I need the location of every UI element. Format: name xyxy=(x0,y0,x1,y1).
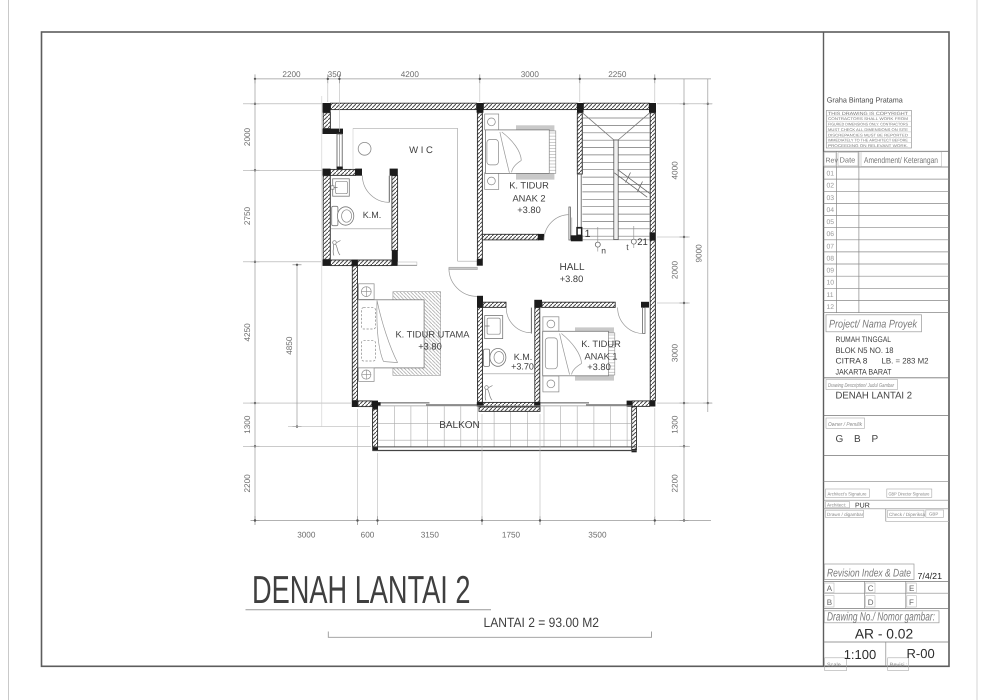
svg-text:A: A xyxy=(827,584,833,593)
svg-text:2000: 2000 xyxy=(243,127,252,146)
svg-text:2200: 2200 xyxy=(282,70,301,79)
svg-text:09: 09 xyxy=(827,268,835,275)
svg-text:11: 11 xyxy=(827,292,834,299)
svg-text:ANAK 2: ANAK 2 xyxy=(512,194,545,204)
svg-text:1300: 1300 xyxy=(671,415,680,434)
svg-text:B: B xyxy=(827,598,832,607)
svg-text:HALL: HALL xyxy=(559,262,584,273)
svg-text:LB. = 283 M2: LB. = 283 M2 xyxy=(882,357,930,366)
svg-text:1300: 1300 xyxy=(243,415,252,434)
svg-text:THIS DRAWING IS COPYRIGHT: THIS DRAWING IS COPYRIGHT xyxy=(828,111,908,116)
svg-text:BLOK N5 NO. 18: BLOK N5 NO. 18 xyxy=(836,346,895,355)
svg-text:K. TIDUR: K. TIDUR xyxy=(581,339,621,349)
svg-text:Graha Bintang Pratama: Graha Bintang Pratama xyxy=(827,96,904,105)
svg-text:Amendment/ Keterangan: Amendment/ Keterangan xyxy=(864,155,938,165)
svg-text:JAKARTA BARAT: JAKARTA BARAT xyxy=(836,368,892,377)
svg-text:+3.80: +3.80 xyxy=(560,274,584,284)
svg-text:01: 01 xyxy=(827,171,835,178)
svg-text:600: 600 xyxy=(361,531,375,540)
svg-text:DENAH LANTAI 2: DENAH LANTAI 2 xyxy=(252,569,471,612)
svg-text:DISCREPANCIES MUST BE REPORTED: DISCREPANCIES MUST BE REPORTED xyxy=(828,132,908,137)
svg-text:2200: 2200 xyxy=(243,474,252,493)
svg-text:GBP Director Signature: GBP Director Signature xyxy=(889,491,930,496)
svg-text:Project/ Nama Proyek: Project/ Nama Proyek xyxy=(829,319,917,331)
svg-text:Drawing Description/ Judul Gam: Drawing Description/ Judul Gambar xyxy=(828,383,895,389)
svg-text:2000: 2000 xyxy=(671,260,680,279)
svg-text:Revision Index & Date: Revision Index & Date xyxy=(827,568,911,580)
svg-text:PUR: PUR xyxy=(855,502,870,509)
svg-text:+3.70: +3.70 xyxy=(511,362,534,372)
svg-text:3000: 3000 xyxy=(521,70,540,79)
svg-text:10: 10 xyxy=(827,280,835,287)
svg-text:1: 1 xyxy=(585,228,591,240)
svg-text:3000: 3000 xyxy=(671,343,680,362)
svg-text:+3.80: +3.80 xyxy=(517,205,541,215)
svg-text:DENAH LANTAI 2: DENAH LANTAI 2 xyxy=(836,391,913,402)
svg-text:05: 05 xyxy=(827,219,835,226)
svg-text:07: 07 xyxy=(827,243,835,250)
svg-text:1750: 1750 xyxy=(502,531,521,540)
svg-text:Architect:: Architect: xyxy=(827,503,846,508)
svg-text:IMMEDIATELY TO THE ARCHITECT B: IMMEDIATELY TO THE ARCHITECT BEFORE xyxy=(828,138,908,143)
svg-text:9000: 9000 xyxy=(695,244,704,263)
svg-text:Rev: Rev xyxy=(826,157,839,164)
svg-text:3150: 3150 xyxy=(421,531,440,540)
svg-text:03: 03 xyxy=(827,195,835,202)
svg-text:12: 12 xyxy=(827,304,835,311)
svg-text:ANAK 1: ANAK 1 xyxy=(584,351,617,361)
svg-text:K.M.: K.M. xyxy=(363,210,382,220)
svg-text:02: 02 xyxy=(827,183,835,190)
svg-text:21: 21 xyxy=(637,237,648,248)
svg-text:LANTAI 2 = 93.00 M2: LANTAI 2 = 93.00 M2 xyxy=(484,615,600,630)
svg-text:W I C: W I C xyxy=(409,145,433,156)
svg-text:06: 06 xyxy=(827,231,835,238)
svg-text:GBP: GBP xyxy=(929,512,938,517)
svg-text:08: 08 xyxy=(827,255,835,262)
svg-text:2250: 2250 xyxy=(608,70,627,79)
svg-text:MUST CHECK ALL DIMENSIONS ON S: MUST CHECK ALL DIMENSIONS ON SITE xyxy=(828,127,908,132)
svg-text:AR - 0.02: AR - 0.02 xyxy=(855,626,913,641)
svg-text:CONTRACTORS SHALL WORK FROM: CONTRACTORS SHALL WORK FROM xyxy=(828,116,908,121)
svg-text:FIGURED DIMENSIONS ONLY. CONTR: FIGURED DIMENSIONS ONLY. CONTRACTORS xyxy=(828,122,908,127)
svg-text:Architect's Signature: Architect's Signature xyxy=(828,491,867,496)
svg-text:3500: 3500 xyxy=(588,531,607,540)
svg-text:G B P: G B P xyxy=(836,434,883,445)
svg-text:3000: 3000 xyxy=(297,531,316,540)
svg-text:K. TIDUR UTAMA: K. TIDUR UTAMA xyxy=(395,329,470,339)
svg-text:350: 350 xyxy=(328,70,342,79)
svg-text:CITRA 8: CITRA 8 xyxy=(836,357,869,366)
svg-text:Revisi :: Revisi : xyxy=(890,662,909,668)
svg-text:n: n xyxy=(601,246,606,256)
svg-text:4200: 4200 xyxy=(401,70,420,79)
svg-text:Check / Diperiksa: Check / Diperiksa xyxy=(889,512,925,517)
svg-text:C: C xyxy=(868,584,874,593)
svg-text:D: D xyxy=(868,598,874,607)
svg-text:BALKON: BALKON xyxy=(439,420,480,431)
svg-text:Date: Date xyxy=(840,155,856,164)
svg-text:PROCEEDING ON RELEVANT WORK.: PROCEEDING ON RELEVANT WORK. xyxy=(828,143,908,148)
svg-text:Owner / Pemilik: Owner / Pemilik xyxy=(828,422,862,428)
svg-text:K. TIDUR: K. TIDUR xyxy=(509,181,549,191)
svg-text:4000: 4000 xyxy=(671,161,680,180)
svg-text:+3.80: +3.80 xyxy=(418,341,442,351)
svg-text:F: F xyxy=(909,598,914,607)
svg-text:R-00: R-00 xyxy=(907,646,935,661)
svg-text:E: E xyxy=(909,584,914,593)
svg-text:7/4/21: 7/4/21 xyxy=(918,571,943,581)
svg-text:K.M.: K.M. xyxy=(514,352,533,362)
svg-text:Scale: Scale xyxy=(827,662,841,668)
svg-text:+3.80: +3.80 xyxy=(587,362,611,372)
svg-text:1:100: 1:100 xyxy=(844,647,877,662)
svg-text:Drawn / digambar: Drawn / digambar xyxy=(827,512,864,517)
svg-text:Drawing No./ Nomor gambar:: Drawing No./ Nomor gambar: xyxy=(827,610,935,624)
svg-text:2200: 2200 xyxy=(671,474,680,493)
svg-text:04: 04 xyxy=(827,207,835,214)
svg-text:2750: 2750 xyxy=(243,206,252,225)
svg-text:4850: 4850 xyxy=(285,336,294,355)
svg-text:4250: 4250 xyxy=(243,323,252,342)
svg-text:RUMAH TINGGAL: RUMAH TINGGAL xyxy=(836,335,892,344)
